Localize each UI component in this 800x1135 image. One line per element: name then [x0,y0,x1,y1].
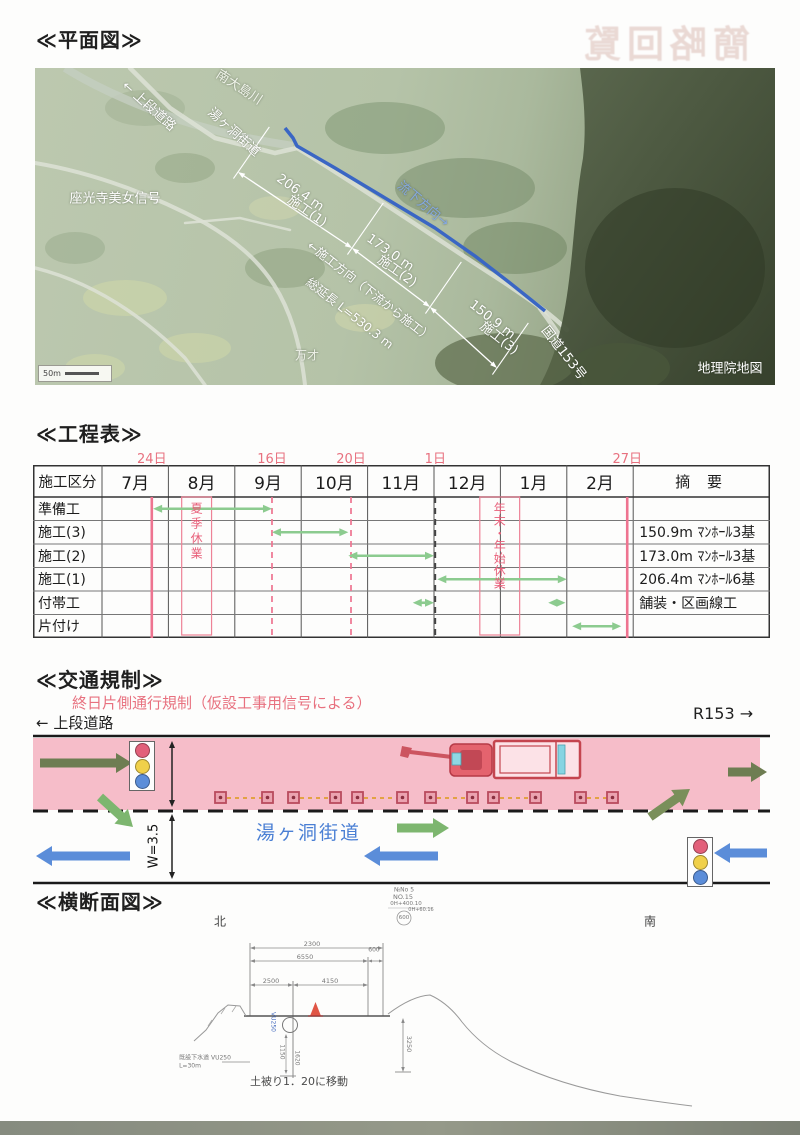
traffic-cone [425,792,436,803]
xsec-terrain-left [194,1005,246,1041]
gantt-bar [153,505,162,513]
bleedthrough-text: 簡略回覧 [578,14,750,62]
date-mark-label: 20日 [336,448,366,467]
xsec-label: 4150 [322,977,339,985]
map-dimension-tick [425,262,461,314]
traffic-cone-dot [401,796,405,800]
traffic-flow-arrow [100,797,124,818]
gantt-bar [263,505,272,513]
header-col-remarks: 摘 要 [633,465,770,497]
xsec-label: 1620 [294,1050,301,1065]
header-col-task: 施工区分 [33,465,102,497]
excavator-boom [410,752,452,757]
signal-lamp [135,759,150,774]
traffic-flow-arrow [36,846,52,866]
traffic-cone [330,792,341,803]
signal-lamp [135,743,150,758]
xsec-label: VU250 [270,1012,277,1032]
gantt-bar [612,622,621,630]
lane-width-dim-bottom [169,814,175,821]
xsec-dim [293,983,298,987]
xsec-pipe-detail [283,1018,298,1033]
lane-width-dim-top [169,800,175,807]
scanned-document-page: 簡略回覧 ≪平面図≫ 南大島川← 上段道路湯ヶ洞街道座光寺美女信号流下方向→20… [0,0,800,1135]
traffic-flow-arrow [714,843,730,863]
excavator-bucket [400,746,412,758]
street-name-label: 湯ヶ洞街道 [256,818,361,845]
lane-width-bottom-label: W=3.5 [147,824,162,868]
task-remark: 173.0m ﾏﾝﾎｰﾙ3基 [633,544,770,568]
header-col-month: 12月 [434,465,500,497]
temporary-signal-left [129,741,155,791]
xsec-hatch [221,1008,225,1014]
xsec-label: 土被り1．20に移動 [250,1073,348,1089]
task-remark: 150.9m ﾏﾝﾎｰﾙ3基 [633,521,770,545]
xsec-label: 既設下水道 VU250 [179,1053,231,1062]
xsec-dim [250,946,255,950]
terrain-patch [159,333,231,363]
terrain-patch [83,280,167,316]
truck-bed [500,746,550,773]
traffic-flow-arrow [671,789,690,806]
xsec-label: 2300 [304,940,321,948]
xsec-dim [288,983,293,987]
traffic-cone-dot [492,796,496,800]
aerial-map-art [35,68,775,385]
xsec-terrain-right [388,995,692,1106]
aerial-map: 南大島川← 上段道路湯ヶ洞街道座光寺美女信号流下方向→206.4 m施工(1)1… [35,68,775,385]
traffic-cone [397,792,408,803]
truck-outline [494,741,580,778]
traffic-cone-dot [429,796,433,800]
xsec-label: 6550 [297,953,314,961]
gantt-bar [437,575,446,583]
task-row-label: 片付け [33,615,102,639]
excavator-body [450,744,492,776]
signal-lamp [693,839,708,854]
traffic-cone [530,792,541,803]
map-dimension-line [345,242,352,248]
traffic-cone-dot [292,796,296,800]
xsec-dim [250,959,255,963]
xsec-label: 600 [399,915,410,921]
xsec-label: L=30m [179,1063,201,1070]
map-scale-label: 50m [43,369,61,378]
task-row-label: 施工(1) [33,568,102,592]
lane-width-dim-top [169,741,175,748]
task-row-label: 付帯工 [33,591,102,615]
signal-lamp [135,774,150,789]
header-col-month: 2月 [567,465,633,497]
holiday-label: 夏季休業 [188,502,205,562]
traffic-cone-dot [471,796,475,800]
bleedthrough-stamp: 簡略回覧 [578,14,773,62]
traffic-cone [467,792,478,803]
gantt-bar [425,599,434,607]
lane-width-dim-bottom [169,872,175,879]
xsec-dim-depth [401,1067,405,1072]
xsec-dim-depth [401,1018,405,1023]
traffic-flow-arrow [650,796,680,817]
scan-edge-band [0,1121,800,1135]
header-col-month: 7月 [102,465,168,497]
traffic-flow-arrow [751,762,767,782]
traffic-cone [288,792,299,803]
traffic-cone [488,792,499,803]
xsec-dim [363,983,368,987]
date-mark-label: 24日 [137,448,167,467]
traffic-flow-arrow [364,846,380,866]
header-col-month: 1月 [500,465,566,497]
xsec-label: 2500 [263,977,280,985]
traffic-regulation-note: 終日片側通行規制（仮設工事用信号による） [72,692,372,713]
traffic-cone-dot [611,796,615,800]
xsec-dim-small [285,1034,288,1038]
traffic-title: ≪交通規制≫ [36,664,164,693]
temporary-signal-right [687,837,713,887]
terrain-patch [155,153,215,183]
gantt-bar [413,599,422,607]
safety-cone [310,1002,321,1016]
traffic-cone [352,792,363,803]
date-mark-label: 16日 [257,448,287,467]
xsec-dim [363,959,368,963]
road-label-left: ← 上段道路 [36,712,113,733]
road-label-right: R153 → [693,704,753,723]
map-annotation: 地理院地図 [697,358,762,377]
gantt-bar [425,552,434,560]
truck-windshield [558,745,565,774]
gantt-bar [339,528,348,536]
terrain-patch [325,102,445,154]
header-col-month: 11月 [368,465,434,497]
xsec-label: 600 [368,947,379,954]
map-annotation: 座光寺美女信号 [69,188,160,207]
terrain-patch [45,232,105,264]
task-row-label: 施工(2) [33,544,102,568]
holiday-label: 年末・年始休業 [491,502,508,590]
header-col-month: 8月 [168,465,234,497]
header-col-month: 9月 [235,465,301,497]
gantt-bar [572,622,581,630]
cross-section-title: ≪横断面図≫ [36,886,164,915]
forest-dark [585,188,765,348]
gantt-bar [272,528,281,536]
signal-lamp [693,870,708,885]
traffic-cone [262,792,273,803]
traffic-cone-dot [219,796,223,800]
excavator-window [452,753,461,765]
xsec-label: 南 [644,913,656,930]
map-scale-segment [65,372,99,375]
excavator-cab [460,750,482,770]
xsec-hatch [208,1020,212,1026]
gantt-bar [548,599,557,607]
gantt-bar [556,599,565,607]
xsec-label: 北 [214,913,226,930]
traffic-cone [215,792,226,803]
map-annotation: 万才 [295,347,319,364]
xsec-dim [368,960,372,963]
gantt-bar [348,552,357,560]
date-mark-label: 1日 [425,448,446,467]
task-row-label: 準備工 [33,497,102,521]
schedule-table: 施工区分7月8月9月10月11月12月1月2月摘 要夏季休業年末・年始休業24日… [33,465,770,638]
task-row-label: 施工(3) [33,521,102,545]
traffic-cone-dot [356,796,360,800]
task-remark: 206.4m ﾏﾝﾎｰﾙ6基 [633,568,770,592]
map-scale-bar: 50m [38,365,112,382]
traffic-cone [575,792,586,803]
xsec-label: NO.15 [393,893,413,901]
xsec-label: 1150 [279,1044,286,1059]
map-dimension-line [238,172,245,178]
signal-lamp [693,855,708,870]
xsec-hatch [232,1006,236,1012]
xsec-label: 3250 [405,1036,413,1053]
xsec-dim [379,960,383,963]
traffic-flow-arrow [114,809,133,827]
traffic-flow-arrow [433,818,449,838]
task-remark: 舗装・区画線工 [633,591,770,615]
traffic-cone-dot [534,796,538,800]
traffic-cone [607,792,618,803]
date-mark-label: 27日 [612,448,642,467]
traffic-cone-dot [266,796,270,800]
plan-view-title: ≪平面図≫ [36,24,143,53]
gantt-bar [558,575,567,583]
xsec-dim [250,983,255,987]
header-col-month: 10月 [301,465,367,497]
schedule-title: ≪工程表≫ [36,418,143,447]
traffic-cone-dot [334,796,338,800]
xsec-label: 0H+60.16 [408,907,433,913]
traffic-cone-dot [579,796,583,800]
